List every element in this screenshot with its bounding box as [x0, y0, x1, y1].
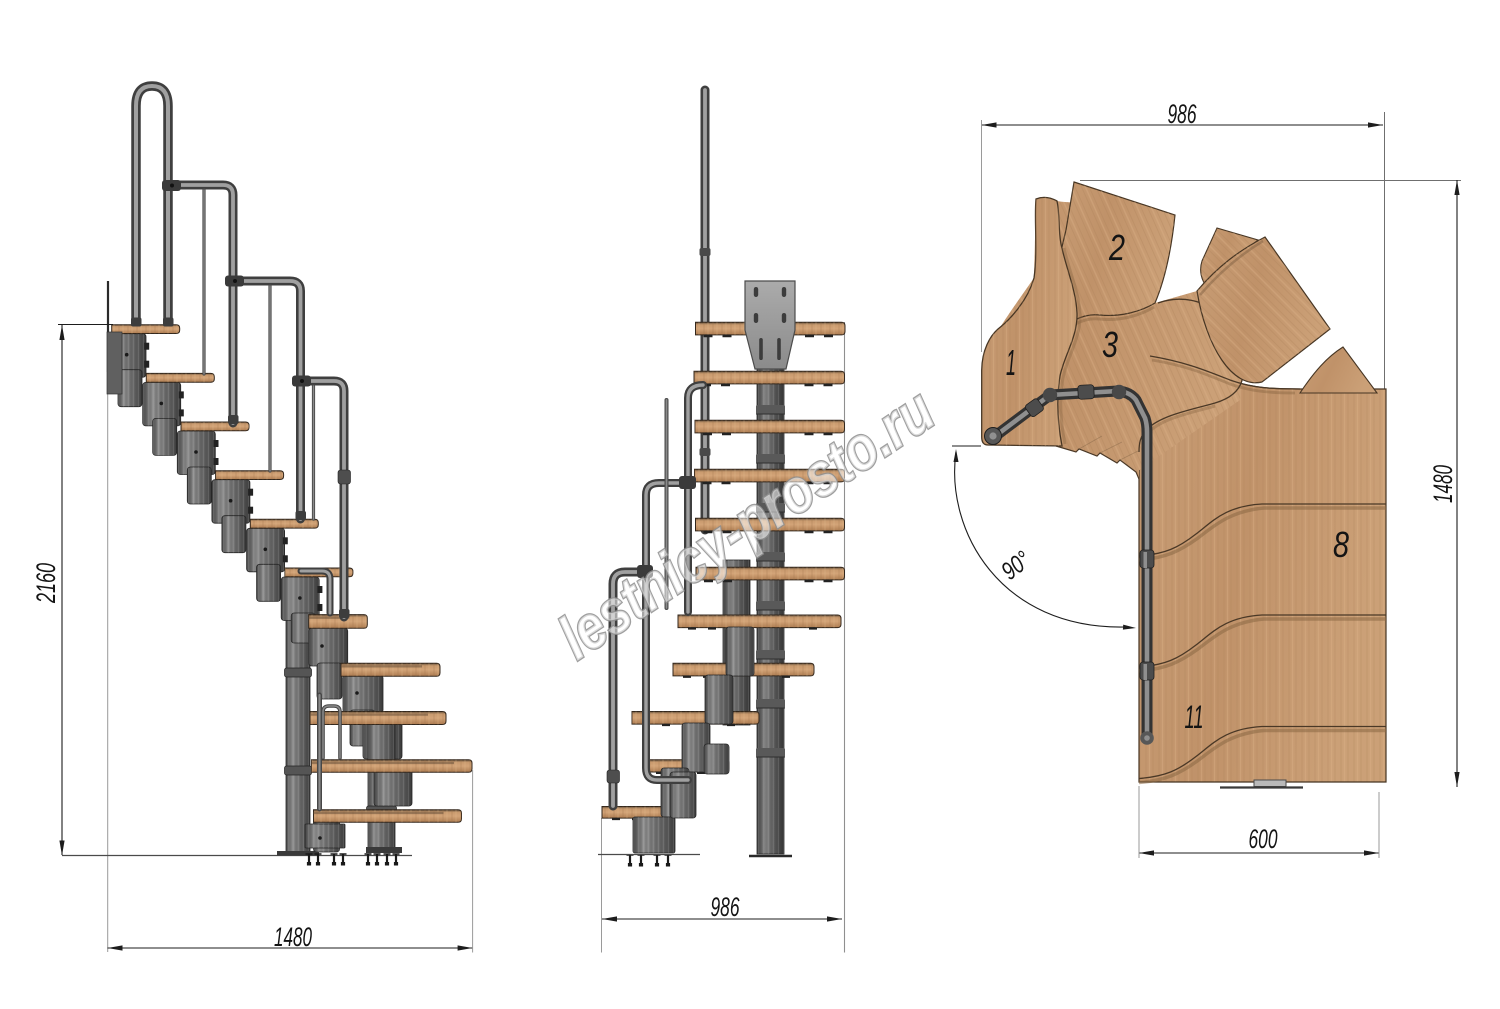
svg-text:1480: 1480	[274, 922, 312, 952]
svg-text:3: 3	[1102, 324, 1118, 365]
svg-text:600: 600	[1249, 824, 1278, 854]
svg-text:11: 11	[1185, 699, 1204, 735]
svg-text:986: 986	[711, 892, 741, 922]
svg-text:1480: 1480	[1428, 465, 1458, 503]
svg-text:986: 986	[1168, 99, 1198, 129]
svg-text:8: 8	[1333, 524, 1349, 565]
svg-text:2: 2	[1108, 227, 1125, 268]
svg-text:1: 1	[1006, 342, 1016, 383]
svg-text:2160: 2160	[31, 563, 61, 604]
